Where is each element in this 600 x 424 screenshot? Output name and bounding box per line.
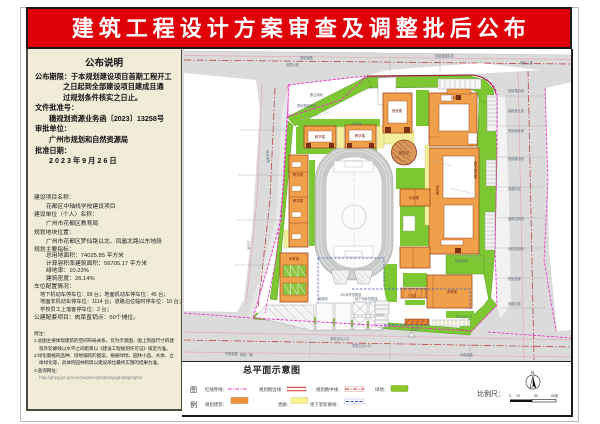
svg-text:规划预留用地: 规划预留用地 <box>297 103 317 108</box>
svg-text:综合楼: 综合楼 <box>451 95 462 100</box>
svg-text:规划绿地: 规划绿地 <box>455 258 469 263</box>
svg-text:篮球场: 篮球场 <box>318 296 328 301</box>
svg-text:规划一路: 规划一路 <box>240 352 254 357</box>
svg-text:规划路边线: 规划路边线 <box>508 88 525 93</box>
svg-text:10: 10 <box>516 394 520 398</box>
svg-text:红线界线：: 红线界线： <box>205 386 227 393</box>
svg-text:0: 0 <box>509 394 511 398</box>
svg-text:道路边线: 道路边线 <box>508 301 522 306</box>
svg-text:50米: 50米 <box>551 393 559 398</box>
svg-text:迎宾大道: 迎宾大道 <box>286 62 300 67</box>
svg-text:学校主出入口: 学校主出入口 <box>352 343 371 348</box>
svg-text:30: 30 <box>534 394 538 398</box>
svg-text:规划道路红线: 规划道路红线 <box>435 53 455 58</box>
svg-text:规划绿化带: 规划绿化带 <box>508 128 525 133</box>
svg-text:规划路边线：: 规划路边线： <box>259 386 285 393</box>
svg-text:人行道: 人行道 <box>246 240 252 251</box>
svg-text:备注用地: 备注用地 <box>310 92 324 97</box>
svg-text:教学楼: 教学楼 <box>315 134 326 139</box>
svg-text:规划建筑：: 规划建筑： <box>205 401 227 408</box>
svg-text:比例尺：: 比例尺： <box>477 389 505 398</box>
svg-text:规划路中线: 规划路中线 <box>508 156 525 161</box>
svg-text:市政道路: 市政道路 <box>225 351 239 356</box>
svg-text:宿舍楼: 宿舍楼 <box>392 108 403 113</box>
svg-text:学校次出入口: 学校次出入口 <box>330 336 349 341</box>
svg-text:教学楼: 教学楼 <box>293 172 304 177</box>
svg-text:市政道路: 市政道路 <box>460 352 474 357</box>
svg-text:教学楼: 教学楼 <box>293 198 304 203</box>
svg-text:综合楼: 综合楼 <box>435 184 439 196</box>
svg-text:绿化控制线: 绿化控制线 <box>508 246 525 251</box>
svg-text:总平面示意图: 总平面示意图 <box>243 364 301 375</box>
svg-text:N: N <box>531 370 534 375</box>
svg-text:图: 图 <box>190 386 197 394</box>
svg-text:体育馆: 体育馆 <box>289 256 300 261</box>
svg-text:地下室轮廓线：: 地下室轮廓线： <box>310 401 341 408</box>
svg-text:直廊：: 直廊： <box>278 401 291 408</box>
svg-text:规划二路: 规划二路 <box>520 60 534 65</box>
svg-text:教学综合楼: 教学综合楼 <box>473 160 477 179</box>
svg-text:规划支路: 规划支路 <box>508 276 522 281</box>
svg-text:运动场: 运动场 <box>352 121 362 126</box>
svg-text:现状道路: 现状道路 <box>300 55 314 60</box>
svg-text:教学楼: 教学楼 <box>355 133 366 138</box>
svg-text:规划路中线：: 规划路中线： <box>316 386 342 393</box>
svg-text:市场: 市场 <box>410 293 417 298</box>
svg-text:实验楼: 实验楼 <box>409 195 420 200</box>
svg-text:绿地：: 绿地： <box>375 386 388 392</box>
svg-text:道路红线: 道路红线 <box>508 186 522 191</box>
svg-text:车行出入口: 车行出入口 <box>456 314 472 319</box>
svg-text:建筑退让线: 建筑退让线 <box>508 108 525 113</box>
svg-text:建筑控制线: 建筑控制线 <box>508 216 525 221</box>
svg-text:食堂楼: 食堂楼 <box>447 289 458 294</box>
svg-text:公交站: 公交站 <box>410 326 420 331</box>
svg-text:例: 例 <box>190 400 197 409</box>
svg-text:报告厅: 报告厅 <box>399 150 410 155</box>
svg-text:200米环形跑道: 200米环形跑道 <box>340 292 362 297</box>
